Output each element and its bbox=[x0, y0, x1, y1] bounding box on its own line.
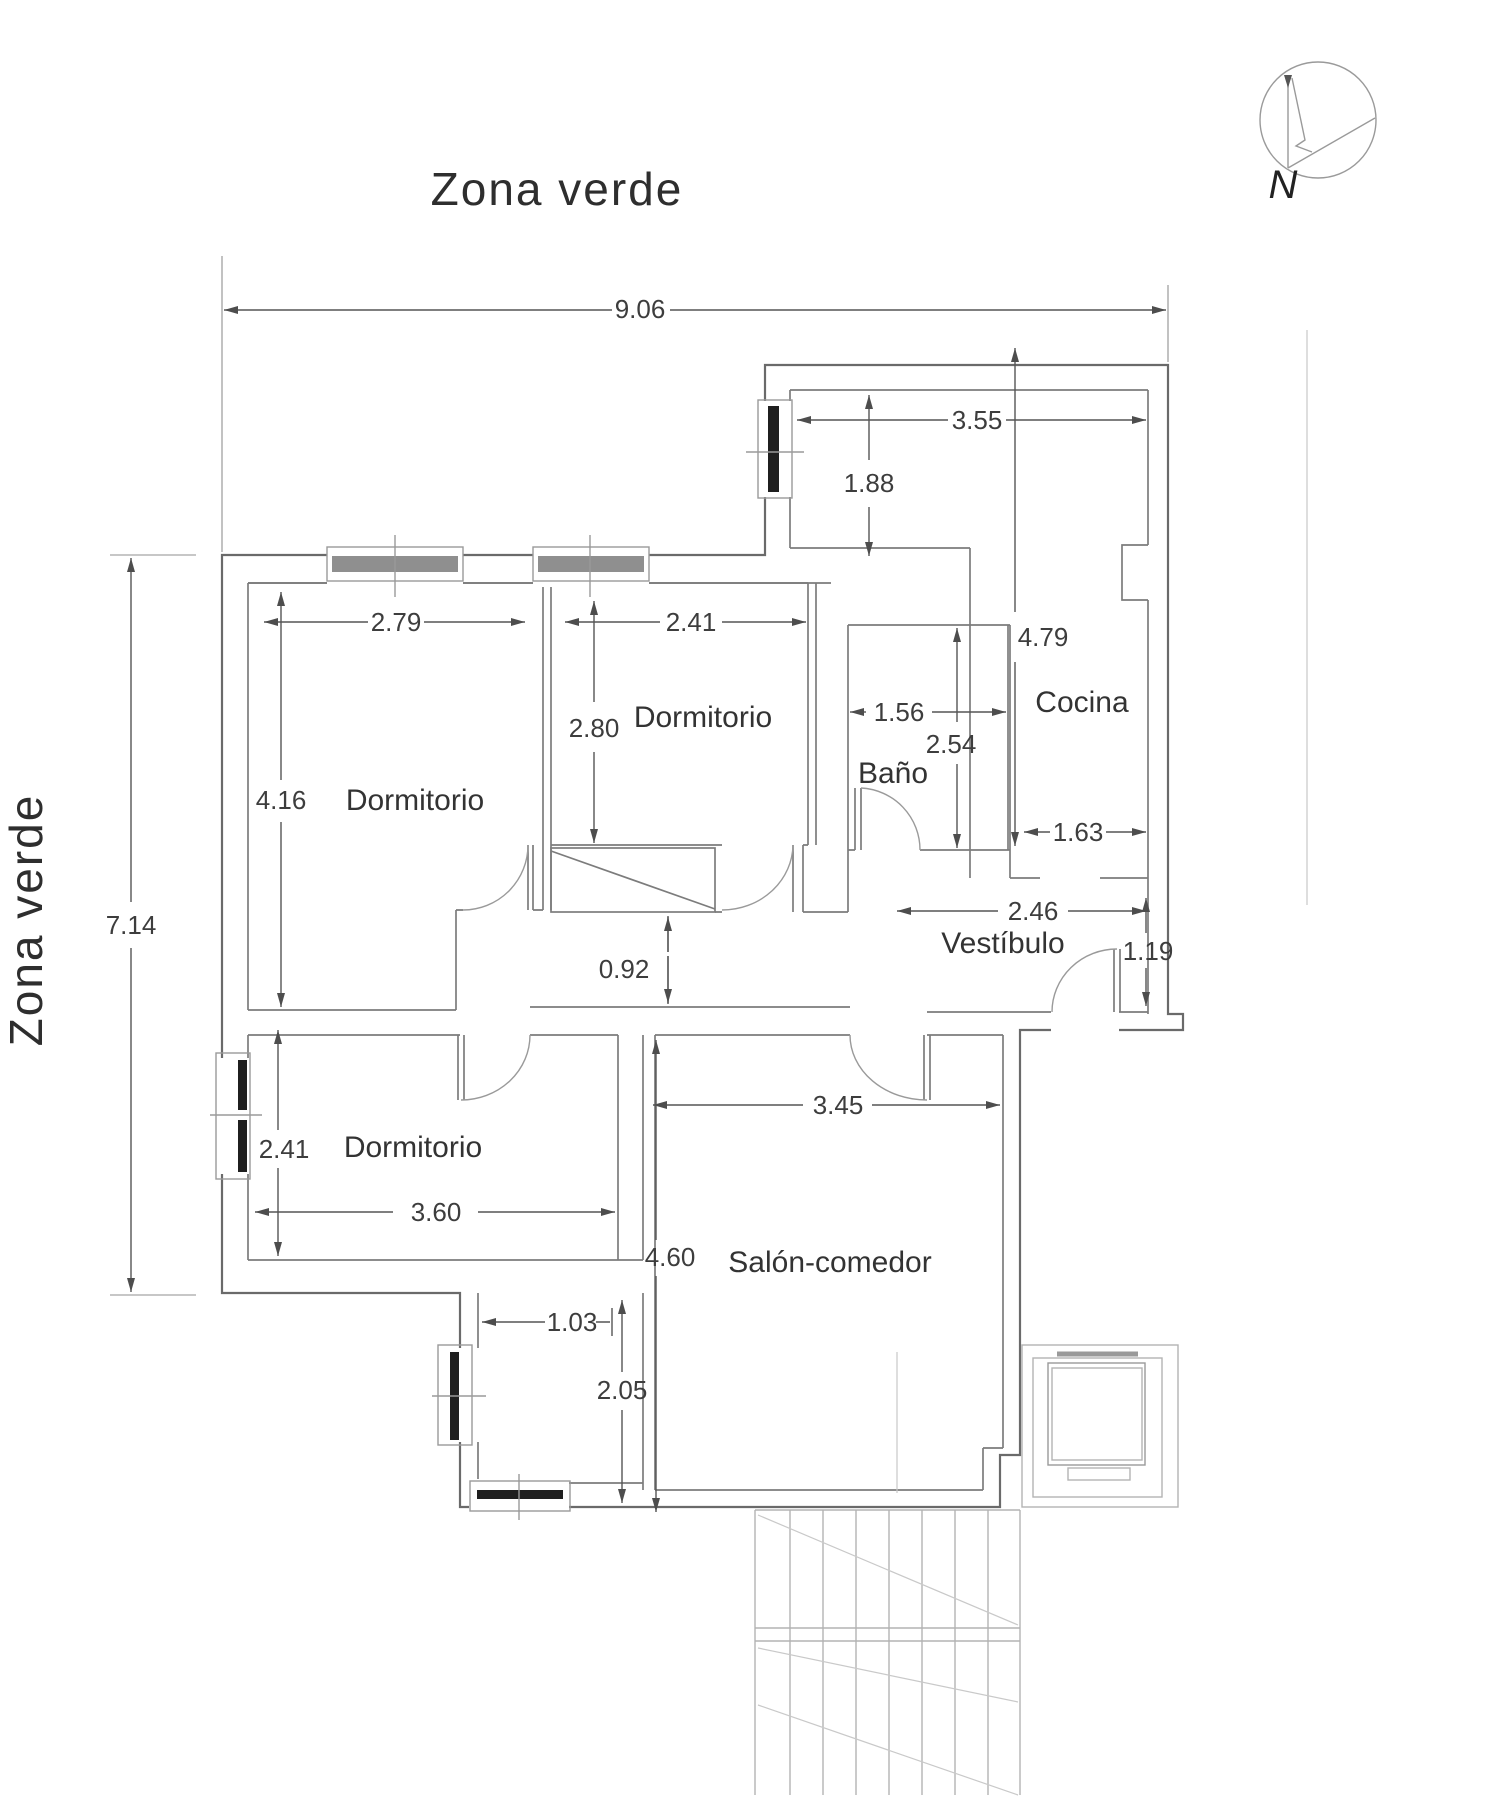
zona-verde-top-label: Zona verde bbox=[431, 163, 684, 215]
door-dormitorio2 bbox=[722, 845, 803, 912]
dim-salon-height: 4.60 bbox=[645, 1242, 696, 1272]
dim-terraza-depth: 1.88 bbox=[844, 468, 895, 498]
dim-cocina-width: 1.63 bbox=[1053, 817, 1104, 847]
door-dormitorio3 bbox=[458, 1035, 530, 1100]
dim-dorm2-height: 2.80 bbox=[569, 713, 620, 743]
dim-cocina-height: 4.79 bbox=[1018, 622, 1069, 652]
floor-plan-drawing: N bbox=[0, 0, 1500, 1797]
dim-salon-width: 3.45 bbox=[813, 1090, 864, 1120]
room-label-dormitorio-3: Dormitorio bbox=[344, 1131, 482, 1164]
dim-total-height: 7.14 bbox=[106, 910, 157, 940]
dim-dorm1-height: 4.16 bbox=[256, 785, 307, 815]
staircase bbox=[755, 1352, 1020, 1795]
dim-dorm3-width: 3.60 bbox=[411, 1197, 462, 1227]
zona-verde-left-label: Zona verde bbox=[0, 794, 52, 1047]
dim-vestibulo: 2.46 bbox=[1008, 896, 1059, 926]
room-label-salon: Salón-comedor bbox=[728, 1246, 931, 1279]
dim-entrada: 1.19 bbox=[1123, 936, 1174, 966]
dim-dorm3-height: 2.41 bbox=[259, 1134, 310, 1164]
wardrobe bbox=[551, 848, 715, 912]
dim-total-width: 9.06 bbox=[615, 294, 666, 324]
door-bano bbox=[855, 788, 920, 850]
dimension-lines bbox=[110, 256, 1168, 1512]
north-label: N bbox=[1269, 163, 1298, 207]
dim-porche-width: 1.03 bbox=[547, 1307, 598, 1337]
window-icon-dorm1 bbox=[327, 535, 463, 597]
floor-plan-page: N bbox=[0, 0, 1500, 1797]
room-label-vestibulo: Vestíbulo bbox=[941, 927, 1064, 960]
room-label-dormitorio-1: Dormitorio bbox=[346, 784, 484, 817]
room-label-cocina: Cocina bbox=[1035, 686, 1129, 719]
dim-bano-width: 1.56 bbox=[874, 697, 925, 727]
dim-porche-height: 2.05 bbox=[597, 1375, 648, 1405]
room-label-bano: Baño bbox=[858, 757, 928, 790]
dim-bano-height: 2.54 bbox=[926, 729, 977, 759]
window-icon-porche-bottom bbox=[470, 1474, 570, 1520]
elevator bbox=[1022, 1345, 1178, 1507]
north-compass: N bbox=[1260, 62, 1376, 207]
window-icon-terraza bbox=[746, 400, 804, 498]
room-label-dormitorio-2: Dormitorio bbox=[634, 701, 772, 734]
dim-dorm1-width: 2.79 bbox=[371, 607, 422, 637]
dim-dorm2-width: 2.41 bbox=[666, 607, 717, 637]
dim-terraza-width: 3.55 bbox=[952, 405, 1003, 435]
door-dormitorio1 bbox=[463, 845, 533, 910]
dim-pasillo: 0.92 bbox=[599, 954, 650, 984]
